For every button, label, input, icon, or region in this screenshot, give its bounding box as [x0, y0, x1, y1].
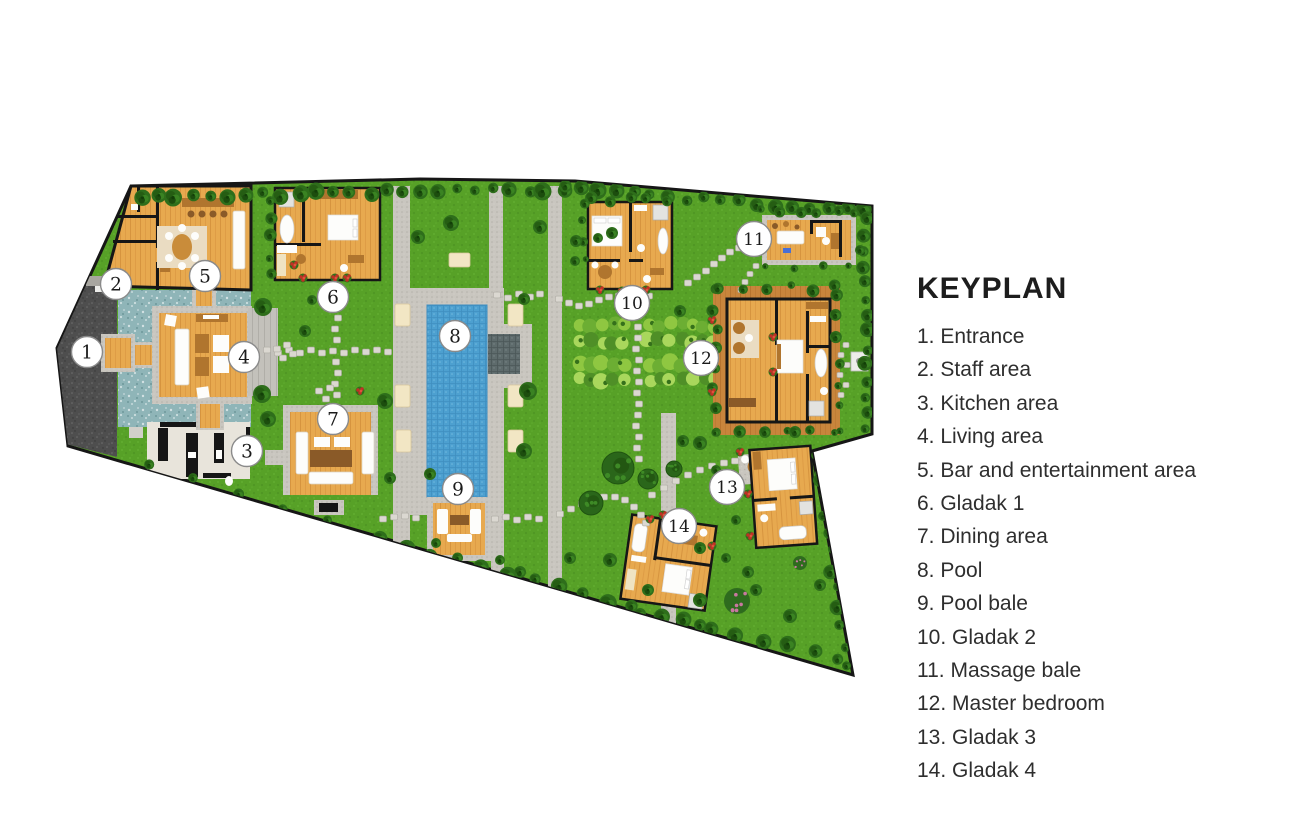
bush-bloom [801, 564, 803, 566]
bed [662, 564, 693, 595]
tree-leaf [605, 473, 610, 478]
chair [612, 262, 619, 269]
tuft-center [786, 643, 789, 646]
tuft-center [755, 589, 757, 591]
legend-list: 1. Entrance2. Staff area3. Kitchen area4… [917, 320, 1297, 788]
tuft-center [269, 258, 271, 260]
tuft-center [838, 210, 840, 212]
stone [606, 294, 613, 300]
marker-number: 2 [110, 275, 122, 296]
tree-leaf [646, 474, 649, 477]
tuft-center [192, 477, 194, 479]
tuft-center [596, 189, 599, 192]
dining-table-oval [172, 234, 192, 260]
red-flower [356, 387, 365, 396]
marker-number: 14 [668, 517, 690, 537]
tuft-dark [822, 494, 826, 498]
stone [685, 280, 692, 286]
tree-leaf [641, 475, 644, 478]
hedge-sprig [621, 322, 625, 326]
tuft-center [267, 418, 270, 421]
stone [697, 467, 704, 473]
plan-marker-7: 7 [318, 404, 349, 435]
plant-tuft [559, 180, 571, 192]
flower-petal [769, 334, 773, 338]
tuft-center [348, 191, 350, 193]
hedge-sprig [588, 377, 592, 381]
flower-petal [646, 289, 649, 292]
flower-petal [650, 518, 653, 521]
plant-tuft [750, 584, 762, 596]
stone [661, 485, 668, 491]
plant-tuft [626, 191, 638, 203]
tuft-center [660, 615, 663, 618]
plant-tuft [842, 661, 851, 670]
bush-bloom [795, 566, 797, 568]
sun-lounger [395, 304, 410, 326]
tuft-center [631, 196, 633, 198]
stone [636, 401, 643, 407]
plant-tuft [832, 654, 843, 665]
tuft-center [401, 191, 403, 193]
plant-tuft [845, 262, 851, 268]
plant-tuft [857, 229, 871, 243]
shower [809, 401, 824, 416]
plant-tuft [693, 436, 707, 450]
stone [330, 348, 337, 354]
tuft-center [534, 578, 536, 580]
tuft-center [747, 571, 749, 573]
stone [335, 370, 342, 376]
flower-petal [596, 287, 600, 291]
plant-tuft [519, 382, 537, 400]
tuft-center [837, 385, 839, 387]
tuft-center [864, 428, 866, 430]
dining-bench [296, 432, 308, 474]
plant-tuft [411, 230, 425, 244]
flower-bush [724, 588, 750, 614]
tuft-center [609, 201, 611, 203]
tuft-center [867, 411, 869, 413]
chair [191, 232, 199, 240]
bowl [783, 221, 789, 227]
bush-bloom [799, 559, 801, 561]
bar-stool [221, 211, 228, 218]
plant-tuft [742, 566, 754, 578]
tuft-center [386, 188, 388, 190]
plan-marker-13: 13 [710, 470, 745, 505]
tuft-center [808, 208, 810, 210]
shower [653, 205, 668, 220]
tuft-center [835, 314, 837, 316]
tuft-center [682, 440, 684, 442]
walkway-dining-link [265, 450, 285, 465]
tuft-center [530, 191, 532, 193]
wall [839, 220, 842, 257]
tuft-center [867, 314, 869, 316]
bar-stool [188, 211, 195, 218]
hedge-bush [596, 318, 609, 331]
chair [191, 254, 199, 262]
bush-bloom [731, 609, 735, 613]
massage-table [777, 231, 804, 244]
kitchen-appliance [216, 450, 222, 459]
walkway-pool-north [489, 186, 503, 290]
plant-tuft [774, 206, 785, 217]
stone [634, 390, 641, 396]
stone [494, 292, 501, 298]
flower-petal [343, 275, 347, 279]
plant-tuft [470, 186, 480, 196]
flower-petal [356, 388, 360, 392]
tuft-center [575, 240, 577, 242]
marker-number: 10 [621, 294, 643, 314]
stone [264, 347, 271, 353]
tuft-center [583, 241, 585, 243]
tuft-center [417, 236, 420, 239]
twin-sinks [757, 503, 775, 511]
pillow [594, 218, 606, 223]
tuft-center [519, 571, 521, 573]
coffee-table [195, 334, 209, 353]
stone [280, 355, 287, 361]
marker-number: 1 [81, 343, 93, 364]
tuft-center [270, 200, 272, 202]
legend-item-13: 13. Gladak 3 [917, 721, 1297, 754]
tuft-center [450, 222, 453, 225]
wall [775, 370, 778, 422]
legend-item-8: 8. Pool [917, 554, 1297, 587]
plant-tuft [413, 185, 428, 200]
tuft-center [739, 430, 741, 432]
plant-tuft [830, 309, 842, 321]
plan-marker-8: 8 [440, 321, 471, 352]
plant-tuft [805, 425, 814, 434]
plant-tuft [761, 284, 772, 295]
tuft-dark [426, 556, 432, 562]
plant-tuft [514, 566, 526, 578]
plant-tuft [501, 182, 516, 197]
bush-bloom [735, 609, 739, 613]
plant-tuft [830, 331, 842, 343]
plant-tuft [856, 261, 870, 275]
shower [799, 501, 813, 515]
plant-tuft [377, 393, 393, 409]
pillow [791, 474, 796, 484]
hedge-sprig [612, 321, 616, 325]
tuft-center [815, 454, 817, 456]
plant-tuft [430, 184, 445, 199]
plan-marker-6: 6 [318, 282, 349, 313]
tuft-center [714, 432, 716, 434]
plant-tuft [712, 283, 724, 295]
bar-stool [199, 211, 206, 218]
tuft-center [580, 186, 583, 189]
chair [340, 264, 348, 272]
tuft-center [845, 647, 847, 649]
stone [332, 326, 339, 332]
tuft-center [569, 557, 571, 559]
flower-petal [708, 543, 712, 547]
tuft-light [818, 472, 822, 476]
hedge-bush [662, 334, 675, 347]
tuft-center [849, 447, 851, 449]
red-flower [343, 274, 352, 283]
flower-petal [659, 512, 663, 516]
stone [374, 347, 381, 353]
stone [341, 350, 348, 356]
tuft-center [699, 442, 702, 445]
hedge-bush [652, 320, 665, 333]
tuft-center [794, 268, 796, 270]
tuft-center [210, 195, 212, 197]
stone [838, 392, 844, 397]
stone [638, 512, 645, 518]
plant-tuft [834, 620, 844, 630]
tuft-center [862, 266, 864, 268]
stone [335, 315, 342, 321]
plant-tuft [830, 289, 843, 302]
hedge-sprig [690, 325, 694, 329]
plant-tuft [254, 298, 272, 316]
wall [810, 220, 813, 234]
hedge-bush [606, 373, 619, 386]
tuft-center [832, 548, 834, 550]
kitchen-sink [188, 452, 196, 458]
tuft-center [828, 207, 830, 209]
tuft-center [742, 288, 744, 290]
dining-bench [309, 472, 353, 484]
red-flower [299, 274, 308, 283]
hedge-bush [593, 355, 609, 371]
stone [649, 492, 656, 498]
tuft-center [245, 194, 248, 197]
marker-number: 9 [452, 480, 464, 501]
sun-lounger [396, 430, 411, 452]
tuft-center [590, 197, 592, 199]
plant-tuft [365, 187, 380, 202]
plant-tuft [861, 424, 870, 433]
stone [753, 263, 759, 268]
tuft-center [699, 624, 701, 626]
wall [113, 240, 158, 243]
stone [732, 458, 739, 464]
plant-tuft [272, 189, 288, 205]
dining-table [310, 450, 352, 467]
plant-tuft [488, 183, 499, 194]
tree-leaf [650, 471, 653, 474]
plant-tuft [711, 429, 719, 437]
tuft-center [682, 618, 685, 621]
tuft-center [584, 203, 586, 205]
plant-tuft [807, 284, 820, 297]
tuft-center [863, 362, 866, 365]
armchair [196, 386, 209, 399]
sink [634, 205, 647, 211]
stone [352, 347, 359, 353]
kitchen-counter [158, 428, 168, 461]
pillow [684, 580, 689, 589]
tuft-center [609, 559, 612, 562]
plant-tuft [809, 644, 823, 658]
legend: KEYPLAN 1. Entrance2. Staff area3. Kitch… [917, 272, 1297, 788]
plant-tuft [759, 426, 771, 438]
tuft-center [834, 432, 836, 434]
plant-tuft [495, 555, 505, 565]
plant-tuft [694, 542, 706, 554]
sofa [233, 211, 245, 269]
plant-tuft [819, 261, 828, 270]
plant-tuft [564, 552, 576, 564]
stone [636, 379, 643, 385]
tuft-center [867, 350, 869, 352]
tuft-center [384, 400, 387, 403]
round-chair [733, 342, 745, 354]
bowl [795, 225, 800, 230]
stone [391, 514, 398, 520]
chair [592, 262, 599, 269]
plant-tuft [811, 208, 821, 218]
plant-tuft [835, 401, 843, 409]
stone [503, 514, 510, 520]
tree-leaf [590, 501, 594, 505]
red-flower [646, 515, 655, 524]
twin-sinks [277, 245, 297, 253]
stone [385, 349, 392, 355]
plant-tuft [516, 443, 532, 459]
tuft-center [508, 188, 511, 191]
hedge-sprig [622, 337, 626, 341]
stone [636, 456, 643, 462]
pond-steps [129, 427, 143, 438]
plant-tuft [640, 193, 650, 203]
tuft-base [845, 443, 855, 453]
tuft-center [791, 206, 793, 208]
tuft-center [711, 310, 713, 312]
chair [165, 254, 173, 262]
tuft-center [829, 571, 832, 574]
legend-item-9: 9. Pool bale [917, 587, 1297, 620]
stone [612, 494, 619, 500]
plant-tuft [813, 473, 827, 487]
red-flower [708, 316, 717, 325]
stone [334, 337, 341, 343]
plant-tuft [835, 359, 845, 369]
plant-tuft [783, 609, 797, 623]
tuft-center [836, 294, 838, 296]
plant-tuft [733, 425, 745, 437]
sun-lounger [449, 253, 470, 267]
plant-tuft [603, 553, 617, 567]
tuft-center [824, 494, 826, 496]
red-flower [744, 490, 753, 499]
tuft-center [738, 198, 740, 200]
plant-tuft [756, 634, 772, 650]
tuft-center [839, 430, 841, 432]
stone [635, 335, 642, 341]
tuft-dark [842, 539, 847, 544]
hedge-sprig [689, 338, 693, 342]
tree-leaf [626, 458, 631, 463]
tuft-center [717, 287, 719, 289]
plant-tuft [796, 207, 807, 218]
plant-tuft [861, 377, 872, 388]
pillow [608, 218, 620, 223]
tree [579, 491, 603, 515]
bale-bench [447, 534, 472, 542]
flower-petal [773, 371, 776, 374]
tuft-light [824, 493, 829, 498]
flower-petal [744, 491, 748, 495]
tree-leaf [594, 501, 598, 505]
flower-bush [793, 556, 807, 570]
plant-tuft [266, 255, 273, 262]
tuft-shade [840, 536, 847, 543]
plant-tuft [834, 205, 844, 215]
tuft-center [809, 429, 811, 431]
tuft-center [261, 305, 264, 308]
plant-tuft [380, 183, 394, 197]
legend-item-12: 12. Master bedroom [917, 687, 1297, 720]
patio-table [598, 265, 612, 279]
bush-bloom [734, 593, 738, 597]
tuft-center [848, 265, 850, 267]
wall [806, 345, 830, 348]
stone [838, 352, 844, 357]
tuft-center [270, 217, 272, 219]
tuft-dark [402, 548, 409, 555]
tuft-center [846, 665, 848, 667]
plan-marker-3: 3 [232, 436, 263, 467]
tuft-center [844, 539, 846, 541]
stone [536, 516, 543, 522]
stone [635, 412, 642, 418]
plant-tuft [834, 382, 842, 390]
tuft-center [819, 584, 821, 586]
tuft-center [558, 585, 561, 588]
tuft-center [787, 430, 789, 432]
tuft-center [429, 473, 431, 475]
plant-tuft [431, 538, 441, 548]
stone [323, 396, 330, 402]
tuft-center [523, 450, 526, 453]
plant-tuft [605, 196, 616, 207]
wall [629, 259, 643, 262]
tuft-center [818, 473, 820, 475]
wall [810, 220, 842, 223]
plant-tuft [857, 356, 872, 371]
plan-marker-9: 9 [443, 474, 474, 505]
entrance-deck [105, 338, 131, 368]
tuft-center [794, 431, 796, 433]
plant-tuft [583, 256, 589, 262]
plant-tuft [677, 435, 689, 447]
tuft-center [853, 212, 855, 214]
plant-tuft [578, 216, 586, 224]
tuft-center [725, 557, 727, 559]
plant-tuft [205, 191, 216, 202]
plant-tuft [570, 235, 582, 247]
tuft-center [760, 208, 762, 210]
stone [308, 347, 315, 353]
plan-marker-5: 5 [190, 261, 221, 292]
plant-tuft [693, 593, 707, 607]
plant-tuft [238, 188, 253, 203]
chair [643, 275, 651, 283]
legend-item-6: 6. Gladak 1 [917, 487, 1297, 520]
legend-item-4: 4. Living area [917, 420, 1297, 453]
tuft-center [815, 212, 817, 214]
